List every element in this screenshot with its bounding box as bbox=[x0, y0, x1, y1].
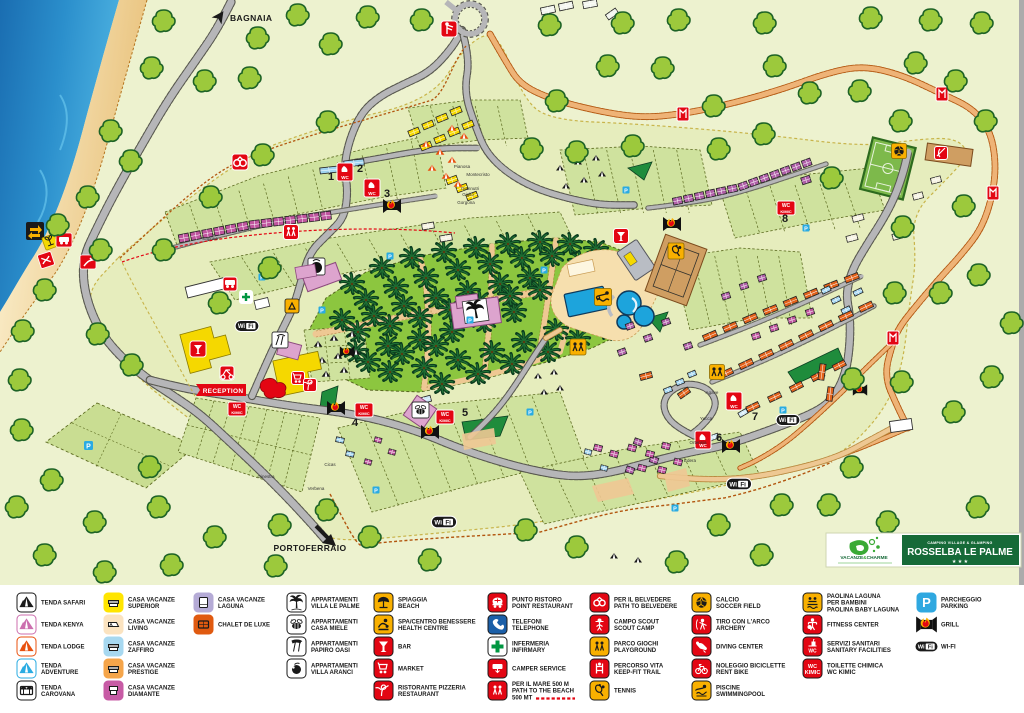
svg-text:P: P bbox=[374, 488, 378, 494]
svg-text:PAPIRO OASI: PAPIRO OASI bbox=[311, 648, 350, 654]
svg-text:500 MT: 500 MT bbox=[512, 696, 533, 702]
svg-text:PER IL MARE 500 M: PER IL MARE 500 M bbox=[512, 682, 569, 688]
svg-text:5: 5 bbox=[462, 407, 468, 419]
svg-text:P: P bbox=[624, 188, 628, 194]
svg-text:P: P bbox=[320, 308, 324, 314]
svg-text:DIAMANTE: DIAMANTE bbox=[128, 692, 160, 698]
svg-text:PATH TO BELVEDERE: PATH TO BELVEDERE bbox=[614, 604, 677, 610]
svg-text:P: P bbox=[86, 443, 91, 450]
svg-text:Fi: Fi bbox=[928, 645, 934, 651]
svg-text:2: 2 bbox=[357, 163, 363, 175]
svg-text:TIRO CON L'ARCO: TIRO CON L'ARCO bbox=[716, 619, 770, 625]
svg-text:PATH TO THE BEACH: PATH TO THE BEACH bbox=[512, 689, 574, 695]
svg-text:8: 8 bbox=[782, 213, 788, 225]
svg-text:3: 3 bbox=[384, 188, 390, 200]
svg-text:WC: WC bbox=[341, 175, 349, 180]
svg-text:PER BAMBINI: PER BAMBINI bbox=[827, 601, 867, 607]
svg-text:Verbena: Verbena bbox=[308, 486, 325, 491]
svg-text:7: 7 bbox=[752, 411, 758, 423]
svg-text:SPA/CENTRO BENESSERE: SPA/CENTRO BENESSERE bbox=[398, 619, 476, 625]
svg-text:ADVENTURE: ADVENTURE bbox=[41, 670, 78, 676]
svg-text:Giglio: Giglio bbox=[462, 192, 474, 197]
svg-text:PERCORSO VITA: PERCORSO VITA bbox=[614, 663, 664, 669]
svg-text:KIMIC: KIMIC bbox=[439, 418, 450, 423]
svg-text:KEEP-FIT TRAIL: KEEP-FIT TRAIL bbox=[614, 670, 661, 676]
svg-text:Cicas: Cicas bbox=[324, 462, 336, 467]
svg-text:MARKET: MARKET bbox=[398, 667, 424, 673]
svg-text:CASA VACANZE: CASA VACANZE bbox=[218, 597, 265, 603]
svg-text:Fi: Fi bbox=[789, 418, 795, 424]
svg-text:RECEPTION: RECEPTION bbox=[203, 388, 244, 395]
svg-text:SERVIZI SANITARI: SERVIZI SANITARI bbox=[827, 641, 880, 647]
svg-text:P: P bbox=[528, 410, 532, 416]
svg-text:Ginestra: Ginestra bbox=[257, 474, 275, 479]
svg-text:Wi: Wi bbox=[434, 519, 442, 526]
svg-text:P: P bbox=[804, 226, 808, 232]
svg-text:P: P bbox=[388, 254, 392, 260]
svg-text:Giannutri: Giannutri bbox=[461, 186, 479, 191]
svg-text:TENDA KENYA: TENDA KENYA bbox=[41, 623, 84, 629]
svg-text:SCOUT CAMP: SCOUT CAMP bbox=[614, 626, 654, 632]
svg-text:PLAYGROUND: PLAYGROUND bbox=[614, 648, 657, 654]
svg-text:CALCIO: CALCIO bbox=[716, 597, 739, 603]
svg-text:CASA MIELE: CASA MIELE bbox=[311, 626, 348, 632]
svg-text:TENDA LODGE: TENDA LODGE bbox=[41, 645, 84, 651]
svg-text:TENDA SAFARI: TENDA SAFARI bbox=[41, 601, 85, 607]
svg-text:VILLA LE PALME: VILLA LE PALME bbox=[311, 604, 360, 610]
svg-text:KIMIC: KIMIC bbox=[358, 411, 369, 416]
svg-text:SPIAGGIA: SPIAGGIA bbox=[398, 597, 428, 603]
svg-text:KIMIC: KIMIC bbox=[231, 410, 242, 415]
svg-text:Fi: Fi bbox=[445, 519, 451, 526]
svg-text:Ortensia: Ortensia bbox=[689, 440, 707, 445]
svg-text:CASA VACANZE: CASA VACANZE bbox=[128, 597, 175, 603]
svg-text:APPARTAMENTI: APPARTAMENTI bbox=[311, 641, 358, 647]
svg-text:SANITARY FACILITIES: SANITARY FACILITIES bbox=[827, 648, 891, 654]
svg-text:P: P bbox=[781, 408, 785, 414]
svg-text:CAMPO SCOUT: CAMPO SCOUT bbox=[614, 619, 659, 625]
svg-text:Wi: Wi bbox=[238, 324, 246, 330]
svg-text:FITNESS CENTER: FITNESS CENTER bbox=[827, 623, 879, 629]
svg-text:TENDA: TENDA bbox=[41, 663, 62, 669]
svg-text:CAMPER SERVICE: CAMPER SERVICE bbox=[512, 667, 566, 673]
svg-text:Pianosa: Pianosa bbox=[454, 164, 471, 169]
svg-text:SOCCER FIELD: SOCCER FIELD bbox=[716, 604, 761, 610]
svg-text:Fi: Fi bbox=[740, 481, 746, 488]
svg-text:TENDA: TENDA bbox=[41, 685, 62, 691]
svg-text:Wi: Wi bbox=[918, 645, 925, 651]
svg-text:PARKING: PARKING bbox=[941, 604, 969, 610]
svg-text:BAGNAIA: BAGNAIA bbox=[230, 13, 272, 23]
svg-text:6: 6 bbox=[716, 432, 722, 444]
svg-text:RISTORANTE PIZZERIA: RISTORANTE PIZZERIA bbox=[398, 685, 467, 691]
svg-text:Fi: Fi bbox=[248, 324, 254, 330]
svg-text:WI-FI: WI-FI bbox=[941, 645, 956, 651]
svg-text:PARCHEGGIO: PARCHEGGIO bbox=[941, 597, 982, 603]
svg-text:P: P bbox=[922, 595, 931, 610]
svg-text:1: 1 bbox=[328, 171, 334, 183]
svg-text:WC KIMIC: WC KIMIC bbox=[827, 670, 856, 676]
svg-text:PORTOFERRAIO: PORTOFERRAIO bbox=[273, 543, 346, 553]
svg-text:WC: WC bbox=[808, 649, 817, 655]
svg-text:CAMPING VILLAGE & GLAMPING: CAMPING VILLAGE & GLAMPING bbox=[927, 541, 992, 545]
svg-text:PAOLINA BABY LAGUNA: PAOLINA BABY LAGUNA bbox=[827, 608, 900, 614]
svg-text:TENNIS: TENNIS bbox=[614, 689, 636, 695]
svg-text:P: P bbox=[673, 506, 677, 512]
svg-text:PARCO GIOCHI: PARCO GIOCHI bbox=[614, 641, 659, 647]
svg-text:★ ★ ★: ★ ★ ★ bbox=[952, 559, 969, 565]
svg-text:Agave: Agave bbox=[706, 390, 719, 395]
svg-text:P: P bbox=[468, 318, 472, 324]
svg-text:POINT RESTAURANT: POINT RESTAURANT bbox=[512, 604, 573, 610]
svg-text:APPARTAMENTI: APPARTAMENTI bbox=[311, 619, 358, 625]
svg-text:CASA VACANZE: CASA VACANZE bbox=[128, 619, 175, 625]
svg-text:KIMIC: KIMIC bbox=[805, 670, 821, 676]
svg-text:CASA VACANZE: CASA VACANZE bbox=[128, 641, 175, 647]
svg-text:Yucca: Yucca bbox=[700, 416, 713, 421]
svg-text:RESTAURANT: RESTAURANT bbox=[398, 692, 439, 698]
svg-text:CAROVANA: CAROVANA bbox=[41, 692, 76, 698]
svg-text:SUPERIOR: SUPERIOR bbox=[128, 604, 160, 610]
svg-text:NOLEGGIO BICICLETTE: NOLEGGIO BICICLETTE bbox=[716, 663, 785, 669]
svg-text:WC: WC bbox=[730, 404, 738, 409]
svg-text:TELEPHONE: TELEPHONE bbox=[512, 626, 549, 632]
svg-text:Edera: Edera bbox=[684, 458, 697, 463]
svg-text:DIVING CENTER: DIVING CENTER bbox=[716, 645, 764, 651]
svg-text:BAR: BAR bbox=[398, 645, 412, 651]
svg-text:TOILETTE CHIMICA: TOILETTE CHIMICA bbox=[827, 663, 884, 669]
svg-text:BEACH: BEACH bbox=[398, 604, 419, 610]
svg-text:VILLA ARANCI: VILLA ARANCI bbox=[311, 670, 353, 676]
svg-text:VACANZE&CHARME: VACANZE&CHARME bbox=[840, 555, 888, 561]
svg-text:CASA VACANZE: CASA VACANZE bbox=[128, 663, 175, 669]
svg-text:ZAFFIRO: ZAFFIRO bbox=[128, 648, 154, 654]
svg-text:PER IL BELVEDERE: PER IL BELVEDERE bbox=[614, 597, 671, 603]
svg-text:Gorgona: Gorgona bbox=[457, 200, 475, 205]
svg-text:P: P bbox=[542, 268, 546, 274]
svg-text:RENT BIKE: RENT BIKE bbox=[716, 670, 748, 676]
svg-text:INFERMERIA: INFERMERIA bbox=[512, 641, 550, 647]
svg-text:PRESTIGE: PRESTIGE bbox=[128, 670, 158, 676]
svg-text:4: 4 bbox=[352, 417, 359, 429]
svg-text:PISCINE: PISCINE bbox=[716, 685, 740, 691]
svg-text:PAOLINA LAGUNA: PAOLINA LAGUNA bbox=[827, 594, 881, 600]
svg-text:Capraia: Capraia bbox=[202, 236, 218, 241]
svg-text:CASA VACANZE: CASA VACANZE bbox=[128, 685, 175, 691]
svg-text:APPARTAMENTI: APPARTAMENTI bbox=[311, 597, 358, 603]
svg-text:LAGUNA: LAGUNA bbox=[218, 604, 244, 610]
svg-text:GRILL: GRILL bbox=[941, 623, 959, 629]
svg-text:LIVING: LIVING bbox=[128, 626, 148, 632]
svg-text:TELEFONI: TELEFONI bbox=[512, 619, 542, 625]
svg-text:Montecristo: Montecristo bbox=[466, 172, 490, 177]
svg-text:INFIRMARY: INFIRMARY bbox=[512, 648, 545, 654]
svg-text:CHALET DE LUXE: CHALET DE LUXE bbox=[218, 623, 270, 629]
svg-text:Wi: Wi bbox=[779, 418, 787, 424]
svg-text:Wi: Wi bbox=[729, 481, 737, 488]
svg-text:ARCHERY: ARCHERY bbox=[716, 626, 745, 632]
svg-text:APPARTAMENTI: APPARTAMENTI bbox=[311, 663, 358, 669]
svg-text:PUNTO RISTORO: PUNTO RISTORO bbox=[512, 597, 562, 603]
svg-text:SWIMMINGPOOL: SWIMMINGPOOL bbox=[716, 692, 765, 698]
svg-text:HEALTH CENTRE: HEALTH CENTRE bbox=[398, 626, 448, 632]
svg-text:ROSSELBA LE PALME: ROSSELBA LE PALME bbox=[907, 547, 1013, 558]
svg-text:WC: WC bbox=[368, 191, 376, 196]
